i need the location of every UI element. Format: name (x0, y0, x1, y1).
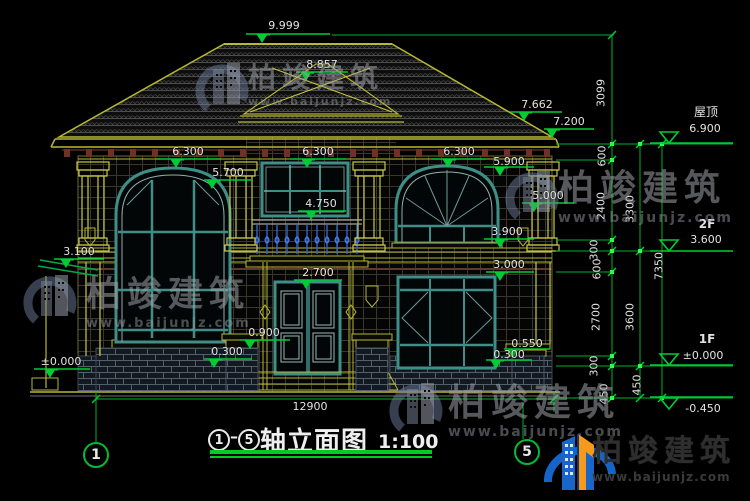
brand-logo-text: 柏竣建筑 (592, 437, 736, 467)
dim-label-lv3100: 3.100 (63, 246, 95, 257)
dim-label-lv3000: 3.000 (493, 259, 525, 270)
text-floor-1f: 1F (699, 333, 716, 345)
dim-label-roof-level: 6.900 (689, 123, 721, 134)
dim-label-lv0900: 0.900 (248, 327, 280, 338)
dim-label-lv0300-door: 0.300 (211, 346, 243, 357)
vdim-d2700: 2700 (591, 303, 602, 331)
brand-logo-url: www.baijunjz.com (592, 470, 731, 484)
axis-bubble-5: 5 (514, 439, 540, 465)
vdim-d300b: 300 (589, 356, 600, 377)
overall-width-dim: 12900 (293, 401, 328, 412)
dim-label-eave-upper: 7.662 (521, 99, 553, 110)
brick-pedestal-left (222, 334, 262, 392)
brick-pedestal-right (352, 334, 392, 392)
watermark-brand: 柏竣建筑 (86, 275, 250, 315)
watermark-url: www.baijunjz.com (558, 211, 733, 225)
watermark-url: www.baijunjz.com (86, 317, 251, 330)
dim-label-f1-level: ±0.000 (683, 350, 724, 361)
dim-label-lv5700: 5.700 (212, 167, 244, 178)
vdim-d3099: 3099 (596, 79, 607, 107)
dim-label-lv6300-mid: 6.300 (302, 146, 334, 157)
dim-label-ground-level: -0.450 (685, 403, 720, 414)
watermark-brand: 柏竣建筑 (558, 168, 726, 209)
dim-label-lv3900: 3.900 (491, 226, 523, 237)
watermark-3: 柏竣建筑www.baijunjz.com (448, 384, 623, 439)
watermark-2: 柏竣建筑www.baijunjz.com (86, 278, 251, 330)
watermark-1: 柏竣建筑www.baijunjz.com (558, 171, 733, 225)
vdim-d450b: 450 (632, 375, 643, 396)
dim-label-peak: 9.999 (268, 20, 300, 31)
watermark-brand: 柏竣建筑 (248, 61, 384, 94)
dim-label-lv4750: 4.750 (305, 198, 337, 209)
dim-label-eave-main: 7.200 (553, 116, 585, 127)
title-dash: – (230, 427, 238, 446)
title-axis-end: 5 (238, 429, 260, 451)
watermark-brand: 柏竣建筑 (448, 381, 620, 424)
watermark-url: www.baijunjz.com (248, 96, 392, 107)
dim-label-lv2700: 2.700 (302, 267, 334, 278)
vdim-d3600: 3600 (625, 303, 636, 331)
vdim-d300a: 300 (589, 240, 600, 261)
watermark-0: 柏竣建筑www.baijunjz.com (248, 64, 392, 107)
vdim-d7350: 7350 (654, 252, 665, 280)
dim-label-lv0300-right: 0.300 (493, 349, 525, 360)
dim-label-lv6300-left: 6.300 (172, 146, 204, 157)
text-roof-name: 屋顶 (694, 106, 718, 118)
dim-label-lv5900: 5.900 (493, 156, 525, 167)
title-underline-2 (210, 456, 432, 458)
dim-label-lv-zero-left: ±0.000 (41, 356, 82, 367)
title-underline (210, 450, 432, 454)
watermark-logo (28, 275, 72, 320)
vdim-d600b: 600 (592, 259, 603, 280)
title-axis-start: 1 (208, 429, 230, 451)
vdim-d600a: 600 (597, 146, 608, 167)
dim-label-f2-level: 3.600 (690, 234, 722, 245)
axis-bubble-1: 1 (83, 442, 109, 468)
elevation-drawing-canvas: 9.9998.8577.6627.2006.3006.3006.3005.900… (0, 0, 750, 501)
dim-label-lv6300-right: 6.300 (443, 146, 475, 157)
